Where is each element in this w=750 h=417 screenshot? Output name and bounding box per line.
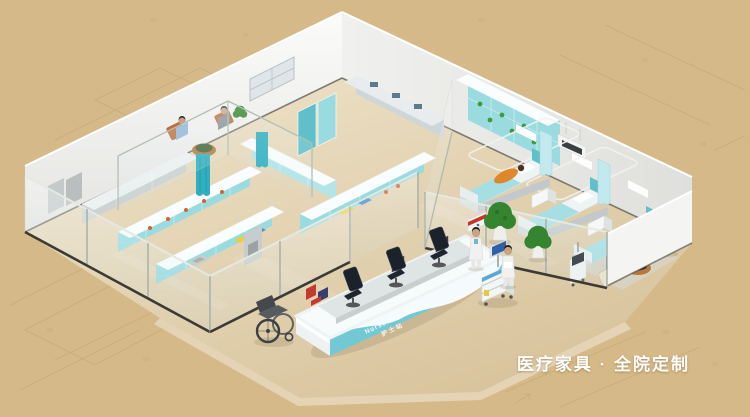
caption-text: 医疗家具 · 全院定制 (517, 354, 690, 376)
warning-sticker (484, 290, 489, 296)
hospital-3d-render: Nurse Station 护士站 (0, 0, 750, 417)
